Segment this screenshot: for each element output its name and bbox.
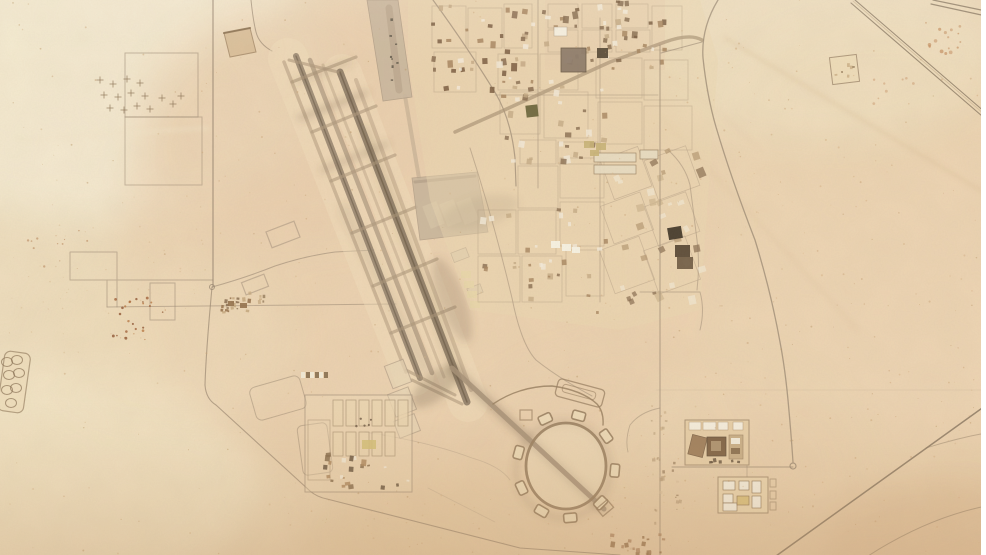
vignette — [0, 0, 986, 555]
frame — [981, 0, 986, 555]
white-edge-strip — [981, 0, 986, 555]
satellite-image — [0, 0, 986, 555]
map-features — [0, 0, 986, 555]
screenshot-root: Satellite view of a desert airbase with … — [0, 0, 986, 555]
